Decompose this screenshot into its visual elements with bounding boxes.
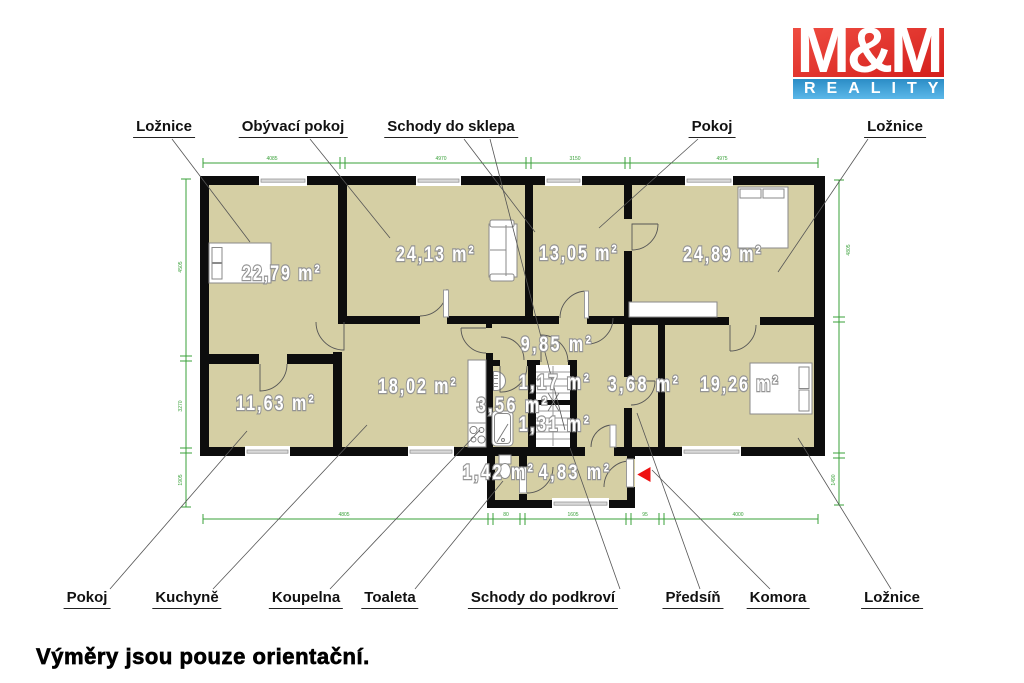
svg-text:1,42 m²: 1,42 m² bbox=[463, 461, 534, 485]
svg-text:4805: 4805 bbox=[338, 512, 349, 518]
svg-text:19,26 m²: 19,26 m² bbox=[700, 373, 778, 397]
svg-text:1605: 1605 bbox=[567, 512, 578, 518]
svg-text:1905: 1905 bbox=[178, 474, 184, 485]
svg-text:4505: 4505 bbox=[178, 261, 184, 272]
svg-text:95: 95 bbox=[642, 512, 648, 518]
svg-text:3270: 3270 bbox=[178, 400, 184, 411]
svg-text:4000: 4000 bbox=[732, 512, 743, 518]
svg-text:4970: 4970 bbox=[435, 156, 446, 162]
svg-text:11,63 m²: 11,63 m² bbox=[236, 392, 314, 416]
svg-text:24,89 m²: 24,89 m² bbox=[683, 243, 761, 267]
svg-text:18,02 m²: 18,02 m² bbox=[378, 375, 456, 399]
svg-text:1490: 1490 bbox=[831, 474, 837, 485]
svg-text:13,05 m²: 13,05 m² bbox=[539, 242, 617, 266]
svg-text:4975: 4975 bbox=[716, 156, 727, 162]
svg-text:80: 80 bbox=[503, 512, 509, 518]
svg-text:4805: 4805 bbox=[846, 244, 852, 255]
svg-text:24,13 m²: 24,13 m² bbox=[396, 243, 474, 267]
svg-text:3150: 3150 bbox=[569, 156, 580, 162]
svg-text:4085: 4085 bbox=[266, 156, 277, 162]
svg-text:22,79 m²: 22,79 m² bbox=[242, 262, 320, 286]
